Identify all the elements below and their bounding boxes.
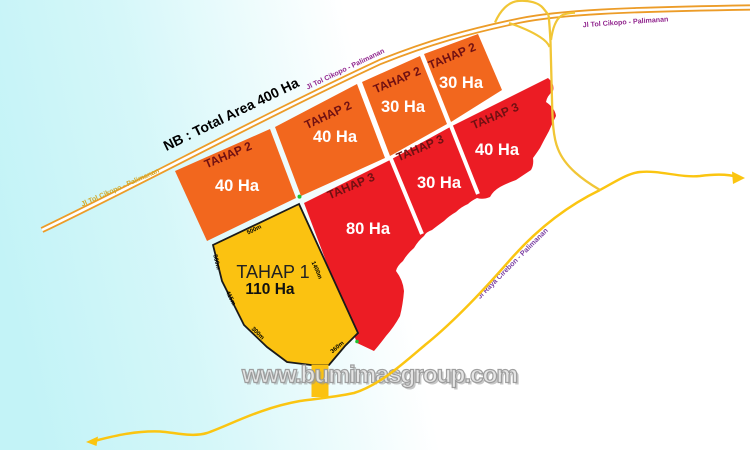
svg-text:40 Ha: 40 Ha bbox=[313, 128, 358, 146]
svg-text:40 Ha: 40 Ha bbox=[475, 141, 520, 159]
svg-text:30 Ha: 30 Ha bbox=[439, 74, 484, 92]
svg-text:80 Ha: 80 Ha bbox=[346, 220, 391, 238]
svg-text:www.bumimasgroup.com: www.bumimasgroup.com bbox=[241, 362, 518, 389]
svg-text:40 Ha: 40 Ha bbox=[215, 177, 260, 195]
svg-text:30 Ha: 30 Ha bbox=[417, 174, 462, 192]
svg-text:110 Ha: 110 Ha bbox=[245, 281, 295, 298]
svg-text:TAHAP 1: TAHAP 1 bbox=[236, 262, 309, 282]
svg-text:30 Ha: 30 Ha bbox=[381, 98, 426, 116]
